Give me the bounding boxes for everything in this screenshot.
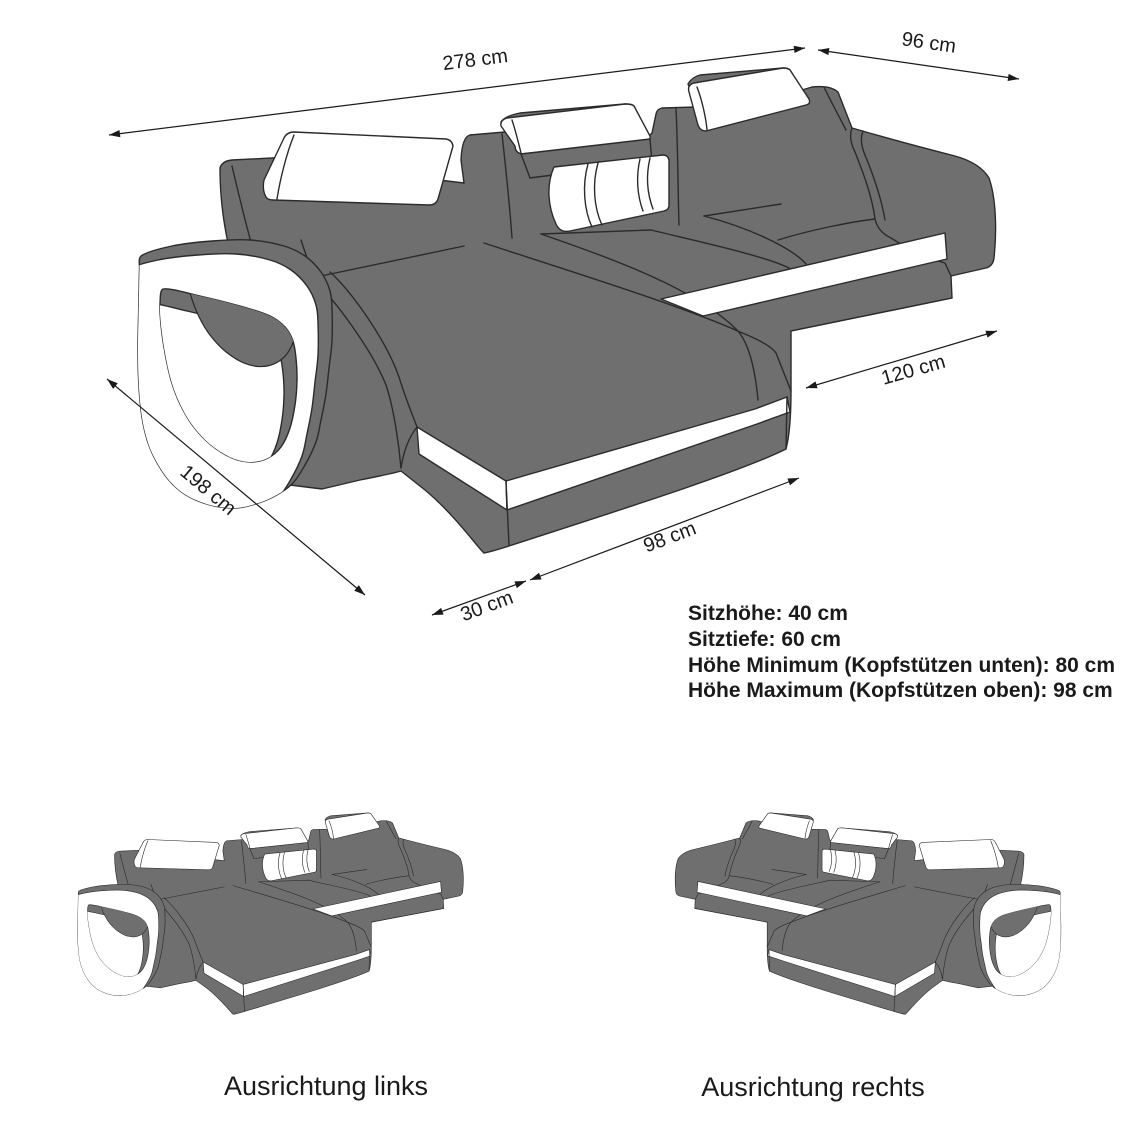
svg-text:Höhe Minimum (Kopfstützen unte: Höhe Minimum (Kopfstützen unten): 80 cm bbox=[688, 654, 1115, 677]
svg-text:Ausrichtung rechts: Ausrichtung rechts bbox=[701, 1072, 925, 1102]
svg-text:Ausrichtung links: Ausrichtung links bbox=[224, 1071, 428, 1101]
svg-text:30 cm: 30 cm bbox=[458, 587, 517, 627]
svg-text:278 cm: 278 cm bbox=[441, 45, 509, 75]
svg-text:Höhe Maximum (Kopfstützen oben: Höhe Maximum (Kopfstützen oben): 98 cm bbox=[688, 679, 1113, 702]
svg-text:Sitztiefe: 60 cm: Sitztiefe: 60 cm bbox=[688, 628, 841, 651]
svg-text:96 cm: 96 cm bbox=[900, 28, 957, 57]
svg-text:98 cm: 98 cm bbox=[641, 517, 700, 557]
svg-text:Sitzhöhe: 40 cm: Sitzhöhe: 40 cm bbox=[688, 602, 848, 625]
